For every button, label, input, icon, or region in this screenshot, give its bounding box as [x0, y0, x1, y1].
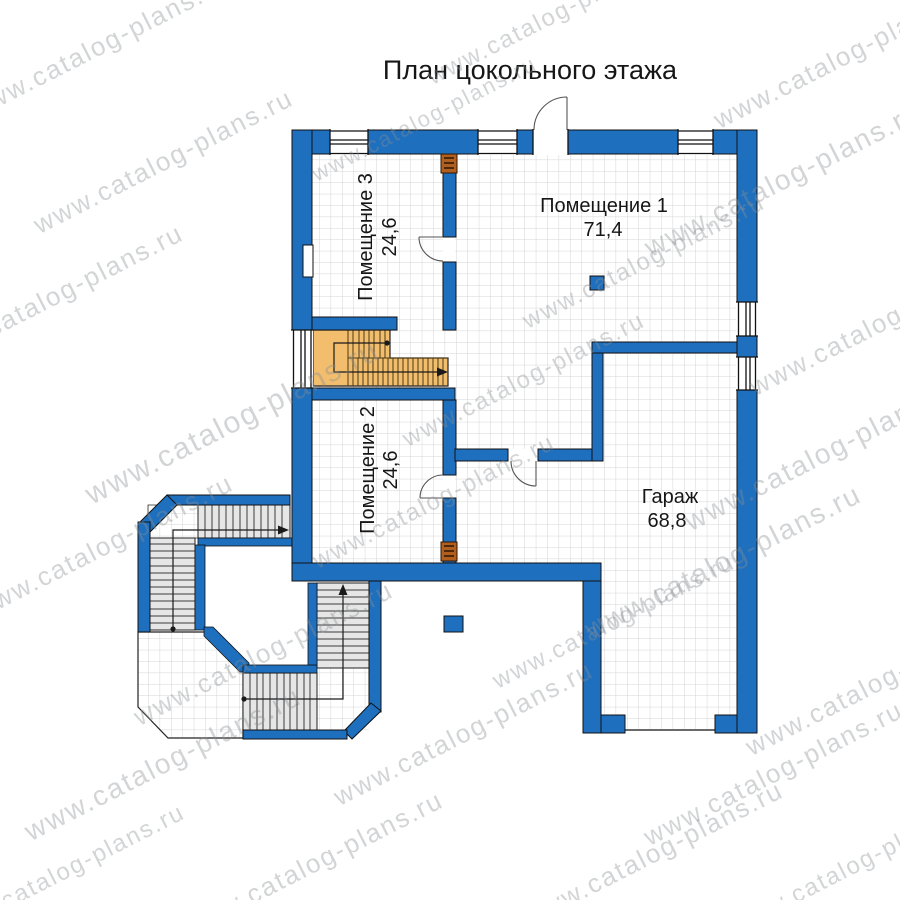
garage-area: 68,8 [648, 510, 687, 532]
page-title: План цокольного этажа [383, 55, 678, 85]
wall-garage-interior-left [592, 342, 603, 461]
room1-name: Помещение 1 [540, 195, 668, 217]
room3-name: Помещение 3 [355, 173, 377, 301]
wall-room3-south [312, 317, 397, 330]
window-right-2 [736, 357, 758, 390]
window-left-stair [291, 330, 313, 388]
vent-shaft-bottom [441, 542, 457, 561]
wall-garage-left [583, 581, 601, 733]
window-right-1 [736, 302, 758, 336]
wall-right [737, 130, 757, 733]
room1-area: 71,4 [584, 219, 623, 241]
entry-door-gap [533, 129, 568, 155]
window-top-3 [678, 129, 713, 155]
wall-hall-a [455, 449, 508, 461]
partition-room2-a [443, 400, 456, 475]
floor-plan-drawing: План цокольного этажа Помещение 1 71,4 П… [0, 0, 900, 900]
pillar-room1 [590, 276, 604, 290]
entry-door-swing [534, 97, 567, 130]
window-top-1 [330, 129, 368, 155]
window-top-2 [478, 129, 517, 155]
wall-stair-south [312, 388, 455, 400]
room3-area: 24,6 [379, 218, 401, 257]
wall-niche [303, 245, 313, 277]
garage-pier-right [715, 715, 737, 733]
wall-garage-interior-top [592, 342, 737, 353]
vent-shaft-top [441, 154, 457, 173]
garage-name: Гараж [642, 486, 699, 508]
floor-plan-page: План цокольного этажа Помещение 1 71,4 П… [0, 0, 900, 900]
garage-pier-left [601, 715, 625, 733]
room2-area: 24,6 [380, 451, 402, 490]
partition-room3-b [443, 262, 456, 330]
room2-name: Помещение 2 [357, 406, 379, 534]
wall-bottom-left [292, 563, 601, 581]
pillar-yard [444, 616, 463, 632]
